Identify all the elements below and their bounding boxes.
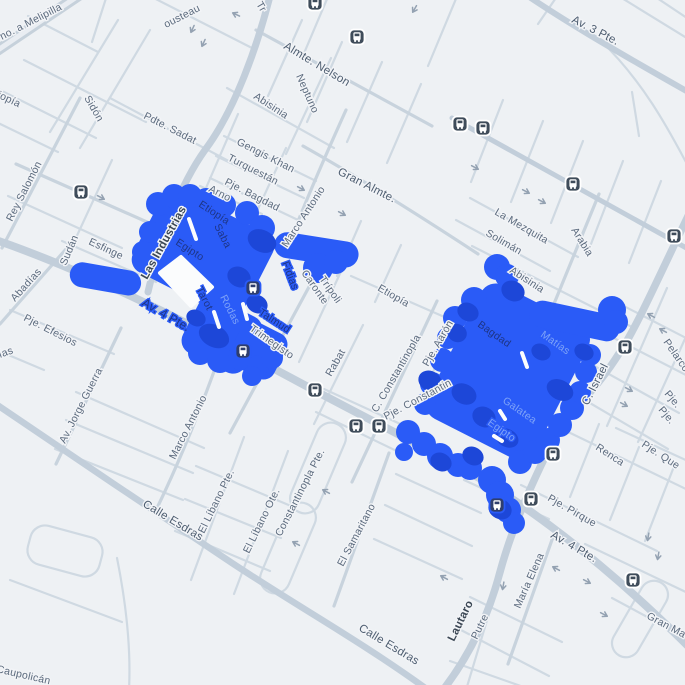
street-label-almte-nelson: Almte. Nelson [281,40,351,89]
bus-stop-icon[interactable] [308,0,323,11]
street-label-calle-esdras-mid: Calle Esdras [140,498,205,543]
bus-stop-icon[interactable] [74,185,89,200]
street-label-abadias: Abadías [8,266,44,304]
street-label-el-samaritano: El Samaritano [335,502,378,569]
bus-stop-icon[interactable] [626,573,641,588]
street-label-sudan: Sudán [58,233,81,267]
street-label-marco-antonio-lower: Marco Antonio [167,393,210,461]
bus-stop-icon[interactable] [349,419,364,434]
bus-stop-icon[interactable] [350,30,365,45]
street-label-etiopia-center: Etiopía [376,282,412,310]
street-label-cousteau: ousteau [162,2,202,30]
map-canvas[interactable]: no. a Melipilla ousteau Tr Almte. Nelson… [0,0,685,685]
street-label-tiopia: tiopía [0,88,22,110]
street-label-soliman: Solimán [484,227,524,257]
street-label-fidias: Fidias [279,260,301,292]
bus-stop-icon[interactable] [566,177,581,192]
bus-stop-icon[interactable] [236,344,251,359]
bus-stop-icon[interactable] [667,229,682,244]
bus-stop-icon[interactable] [246,281,261,296]
bus-stop-icon[interactable] [490,498,505,513]
street-label-no-a-melipilla: no. a Melipilla [0,1,64,43]
street-label-gran-ma: Gran Ma [645,610,685,641]
bus-stop-icon[interactable] [372,419,387,434]
street-label-renca: Renca [593,441,626,468]
bus-stop-icon[interactable] [476,121,491,136]
street-label-el-libano-ote: El Líbano Ote. [241,487,283,556]
bus-stop-icon[interactable] [546,447,561,462]
street-label-av-3-pte: Av. 3 Pte. [570,14,621,48]
bus-stop-icon[interactable] [524,492,539,507]
bus-stop-icon[interactable] [453,117,468,132]
street-label-caupolican: Caupolicán [0,663,52,685]
street-label-el-libano-pte: El Líbano Pte. [196,468,237,536]
street-label-putre: Putre [469,612,491,641]
street-label-ias: ías [0,344,15,360]
bus-stop-icon[interactable] [308,383,323,398]
street-label-pje-efesios: Pje. Efesios [22,312,80,349]
street-label-gran-almte: Gran Almte. [336,166,398,206]
street-label-pdte-sadat: Pdte. Sadat [142,110,199,147]
bus-stop-icon[interactable] [618,340,633,355]
